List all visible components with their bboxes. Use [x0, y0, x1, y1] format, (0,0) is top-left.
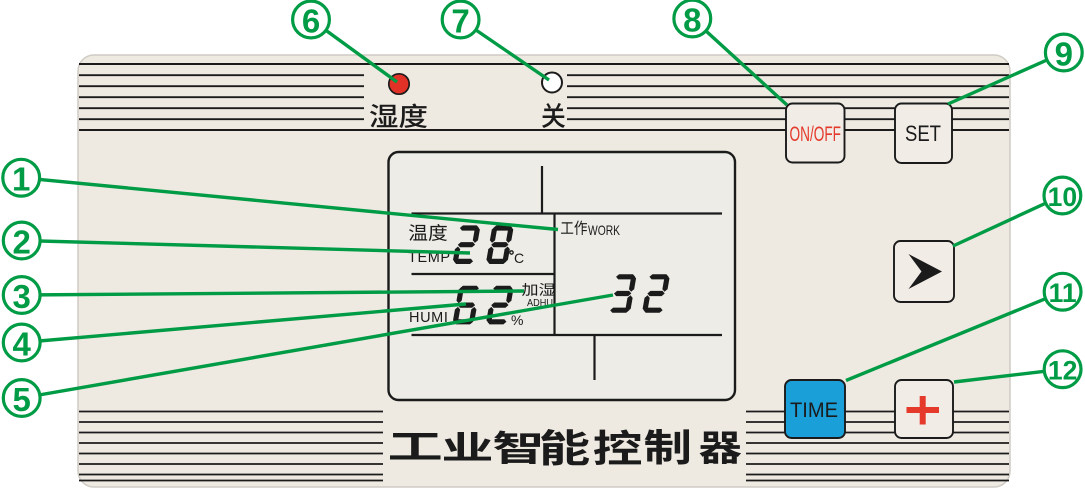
svg-text:3: 3 [13, 278, 31, 315]
svg-text:TIME: TIME [790, 398, 838, 422]
svg-text:8: 8 [683, 2, 701, 39]
svg-text:2: 2 [13, 224, 31, 261]
svg-text:10: 10 [1048, 182, 1077, 212]
svg-text:9: 9 [1055, 36, 1073, 73]
svg-text:C: C [514, 250, 524, 266]
svg-text:5: 5 [13, 381, 31, 418]
svg-text:%: % [511, 312, 523, 328]
svg-text:12: 12 [1048, 356, 1077, 386]
svg-text:ON/OFF: ON/OFF [790, 122, 842, 146]
svg-text:WORK: WORK [588, 222, 620, 238]
svg-text:1: 1 [12, 161, 30, 198]
svg-text:SET: SET [905, 121, 941, 146]
svg-text:7: 7 [451, 3, 469, 40]
svg-text:6: 6 [302, 3, 320, 40]
svg-text:4: 4 [13, 326, 32, 363]
svg-text:11: 11 [1049, 278, 1077, 308]
